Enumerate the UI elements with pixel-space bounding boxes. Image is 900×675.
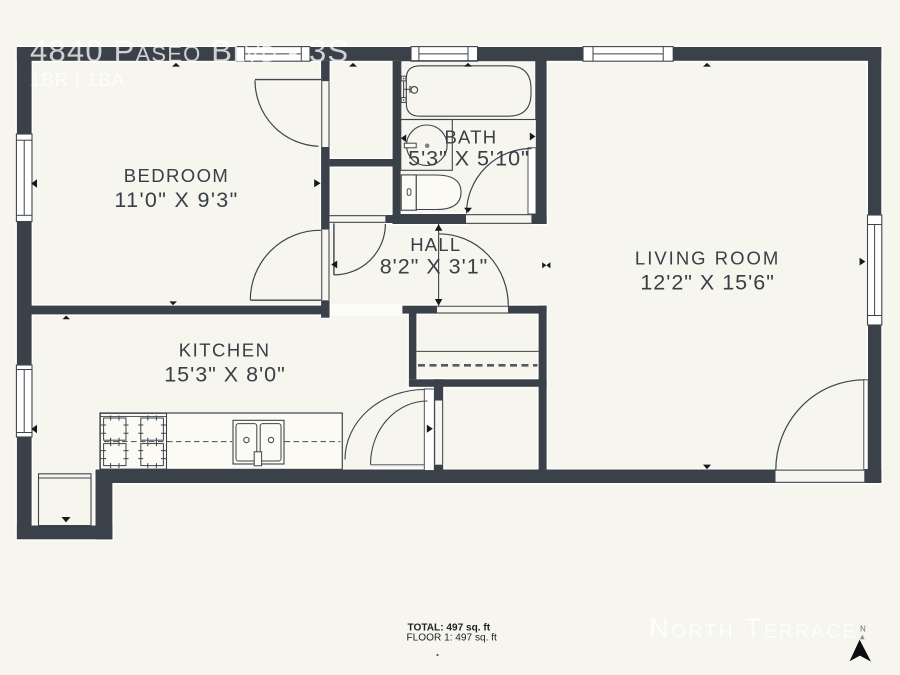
svg-text:North Terrace: North Terrace xyxy=(649,613,858,644)
svg-text:LIVING ROOM: LIVING ROOM xyxy=(635,247,780,268)
svg-text:FLOOR 1: 497 sq. ft: FLOOR 1: 497 sq. ft xyxy=(407,633,498,644)
svg-text:11'0" X 9'3": 11'0" X 9'3" xyxy=(114,188,238,212)
svg-text:5'3" X 5'10": 5'3" X 5'10" xyxy=(408,146,530,170)
svg-text:BEDROOM: BEDROOM xyxy=(124,165,229,186)
svg-text:N: N xyxy=(860,625,866,634)
svg-text:HALL: HALL xyxy=(410,234,461,255)
svg-text:BATH: BATH xyxy=(445,127,498,148)
svg-text:4840 Paseo Blvd - 3S: 4840 Paseo Blvd - 3S xyxy=(30,34,349,69)
svg-text:15'3" X 8'0": 15'3" X 8'0" xyxy=(164,362,286,386)
svg-text:8'2" X 3'1": 8'2" X 3'1" xyxy=(380,255,489,279)
svg-text:KITCHEN: KITCHEN xyxy=(179,339,271,360)
svg-text:1BR | 1BA: 1BR | 1BA xyxy=(30,69,125,90)
svg-text:12'2" X 15'6": 12'2" X 15'6" xyxy=(640,271,775,295)
